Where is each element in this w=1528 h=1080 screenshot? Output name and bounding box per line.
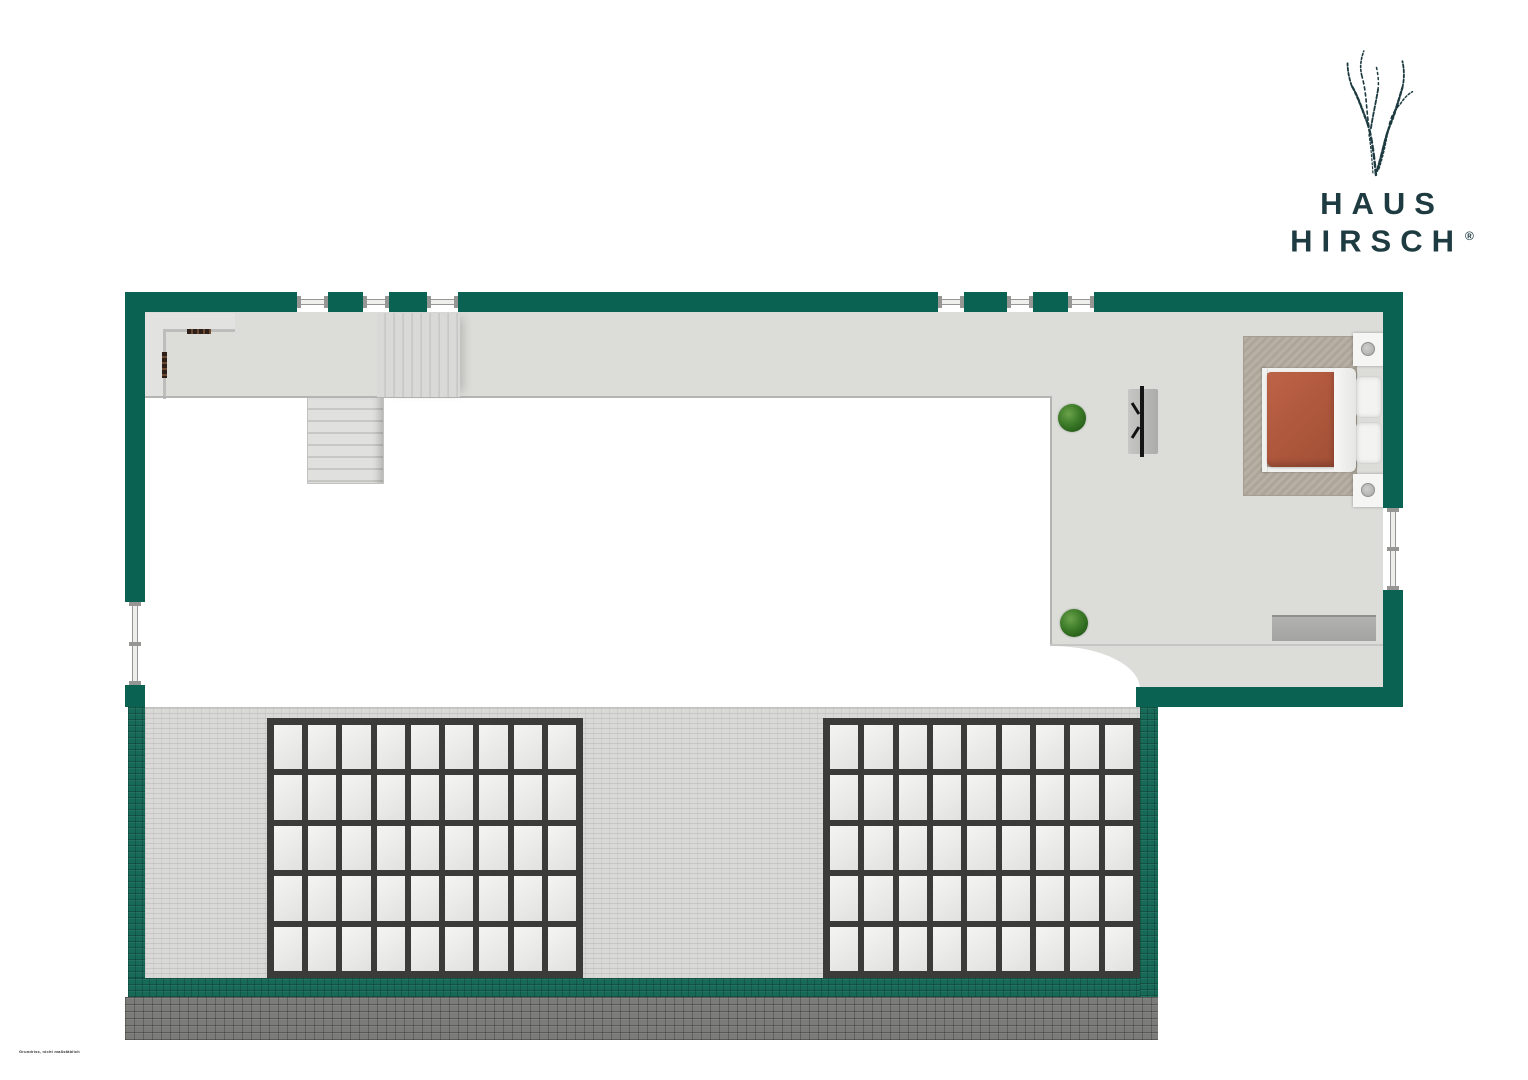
skylight-panel	[1036, 876, 1064, 920]
skylight-panel	[967, 876, 995, 920]
skylight-panel	[308, 826, 336, 870]
skylight-panel	[1105, 927, 1133, 971]
skylight-panel	[1002, 725, 1030, 769]
roof-eave-band	[125, 997, 1158, 1040]
skylight-panel	[377, 927, 405, 971]
skylight-panel	[445, 775, 473, 819]
skylight-panel	[377, 775, 405, 819]
skylight-panel	[308, 725, 336, 769]
skylight-grid-left	[267, 718, 583, 978]
floor-edge	[1050, 644, 1383, 646]
skylight-panel	[933, 725, 961, 769]
skylight-panel	[342, 927, 370, 971]
skylight-panel	[1105, 725, 1133, 769]
skylight-panel	[830, 775, 858, 819]
skylight-panel	[479, 725, 507, 769]
roof-ridge-band-left	[128, 707, 145, 997]
skylight-panel	[830, 927, 858, 971]
bed-sheet	[1334, 368, 1356, 472]
potted-plant	[1060, 609, 1088, 637]
wall-fixture	[162, 352, 167, 378]
skylight-panel	[1002, 927, 1030, 971]
skylight-panel	[830, 876, 858, 920]
nightstand	[1353, 474, 1384, 507]
skylight-panel	[1070, 826, 1098, 870]
skylight-panel	[514, 927, 542, 971]
window-north	[427, 292, 458, 312]
skylight-panel	[342, 826, 370, 870]
skylight-panel	[445, 927, 473, 971]
skylight-panel	[864, 826, 892, 870]
skylight-panel	[411, 725, 439, 769]
tv-screen	[1140, 386, 1144, 457]
disclaimer-text: Grundriss, nicht maßstäblich	[19, 1049, 80, 1054]
wall-fixture	[187, 329, 211, 334]
skylight-panel	[1036, 725, 1064, 769]
skylight-panel	[864, 775, 892, 819]
window-west	[125, 602, 145, 685]
bed-pillow	[1356, 422, 1382, 464]
skylight-panel	[1070, 725, 1098, 769]
nightstand	[1353, 333, 1384, 366]
skylight-panel	[1036, 826, 1064, 870]
skylight-panel	[1070, 775, 1098, 819]
bed-pillow	[1356, 376, 1382, 418]
skylight-panel	[274, 826, 302, 870]
window-north	[1007, 292, 1033, 312]
skylight-panel	[967, 725, 995, 769]
table-lamp	[1361, 342, 1375, 356]
skylight-panel	[899, 775, 927, 819]
corridor-floor	[145, 312, 1383, 398]
skylight-panel	[377, 876, 405, 920]
staircase-lower	[307, 398, 384, 484]
skylight-panel	[479, 826, 507, 870]
skylight-panel	[274, 725, 302, 769]
skylight-panel	[864, 725, 892, 769]
skylight-panel	[1002, 775, 1030, 819]
skylight-panel	[514, 725, 542, 769]
skylight-panel	[899, 725, 927, 769]
nook-floor	[145, 313, 235, 330]
skylight-panel	[899, 826, 927, 870]
skylight-panel	[514, 876, 542, 920]
brand-name-line2: HIRSCH®	[1280, 220, 1484, 257]
skylight-panel	[274, 775, 302, 819]
skylight-panel	[479, 927, 507, 971]
staircase-upper	[377, 313, 460, 397]
skylight-panel	[548, 826, 576, 870]
window-east	[1383, 508, 1403, 590]
potted-plant	[1058, 404, 1086, 432]
skylight-panel	[1105, 826, 1133, 870]
brand-name-line1: HAUS	[1280, 187, 1484, 220]
skylight-panel	[342, 725, 370, 769]
skylight-panel	[830, 725, 858, 769]
skylight-panel	[933, 927, 961, 971]
skylight-panel	[411, 876, 439, 920]
bed-duvet	[1267, 372, 1336, 467]
skylight-panel	[967, 927, 995, 971]
skylight-panel	[514, 775, 542, 819]
skylight-panel	[864, 876, 892, 920]
skylight-panel	[479, 876, 507, 920]
brand-logo: HAUS HIRSCH®	[1280, 45, 1475, 257]
skylight-panel	[445, 826, 473, 870]
skylight-panel	[377, 725, 405, 769]
skylight-panel	[1002, 876, 1030, 920]
skylight-panel	[514, 826, 542, 870]
skylight-panel	[1105, 876, 1133, 920]
skylight-panel	[445, 876, 473, 920]
roof-ridge-band-right	[1140, 707, 1158, 997]
skylight-panel	[1036, 775, 1064, 819]
skylight-panel	[342, 775, 370, 819]
skylight-panel	[274, 876, 302, 920]
skylight-panel	[308, 927, 336, 971]
skylight-panel	[933, 876, 961, 920]
skylight-panel	[342, 876, 370, 920]
table-lamp	[1361, 483, 1375, 497]
window-north	[1068, 292, 1094, 312]
floor-edge	[145, 396, 1052, 398]
skylight-panel	[1070, 927, 1098, 971]
skylight-panel	[411, 775, 439, 819]
skylight-panel	[1070, 876, 1098, 920]
skylight-panel	[933, 826, 961, 870]
window-north	[363, 292, 389, 312]
roof-ridge-band-bottom	[128, 978, 1140, 997]
skylight-panel	[308, 775, 336, 819]
bed-frame	[1262, 467, 1336, 472]
skylight-panel	[933, 775, 961, 819]
wall-east	[1383, 292, 1403, 707]
skylight-panel	[479, 775, 507, 819]
skylight-panel	[1036, 927, 1064, 971]
skylight-panel	[899, 876, 927, 920]
wall-south-bedroom	[1136, 687, 1403, 707]
skylight-panel	[864, 927, 892, 971]
skylight-panel	[411, 826, 439, 870]
window-north	[938, 292, 964, 312]
window-north	[297, 292, 328, 312]
skylight-panel	[830, 826, 858, 870]
floorplan-canvas: HAUS HIRSCH® Grundriss, nicht maßstäblic…	[0, 0, 1528, 1080]
skylight-panel	[1002, 826, 1030, 870]
skylight-panel	[899, 927, 927, 971]
skylight-panel	[548, 927, 576, 971]
floor-edge	[1050, 396, 1052, 646]
skylight-panel	[411, 927, 439, 971]
antler-logo-icon	[1332, 45, 1424, 177]
skylight-panel	[967, 826, 995, 870]
skylight-panel	[274, 927, 302, 971]
skylight-panel	[377, 826, 405, 870]
skylight-panel	[445, 725, 473, 769]
skylight-panel	[548, 725, 576, 769]
skylight-panel	[308, 876, 336, 920]
skylight-panel	[1105, 775, 1133, 819]
nook-floor	[145, 330, 163, 398]
skylight-panel	[548, 775, 576, 819]
skylight-panel	[967, 775, 995, 819]
dresser	[1272, 615, 1376, 641]
skylight-grid-right	[823, 718, 1140, 978]
registered-mark: ®	[1465, 229, 1474, 243]
skylight-panel	[548, 876, 576, 920]
